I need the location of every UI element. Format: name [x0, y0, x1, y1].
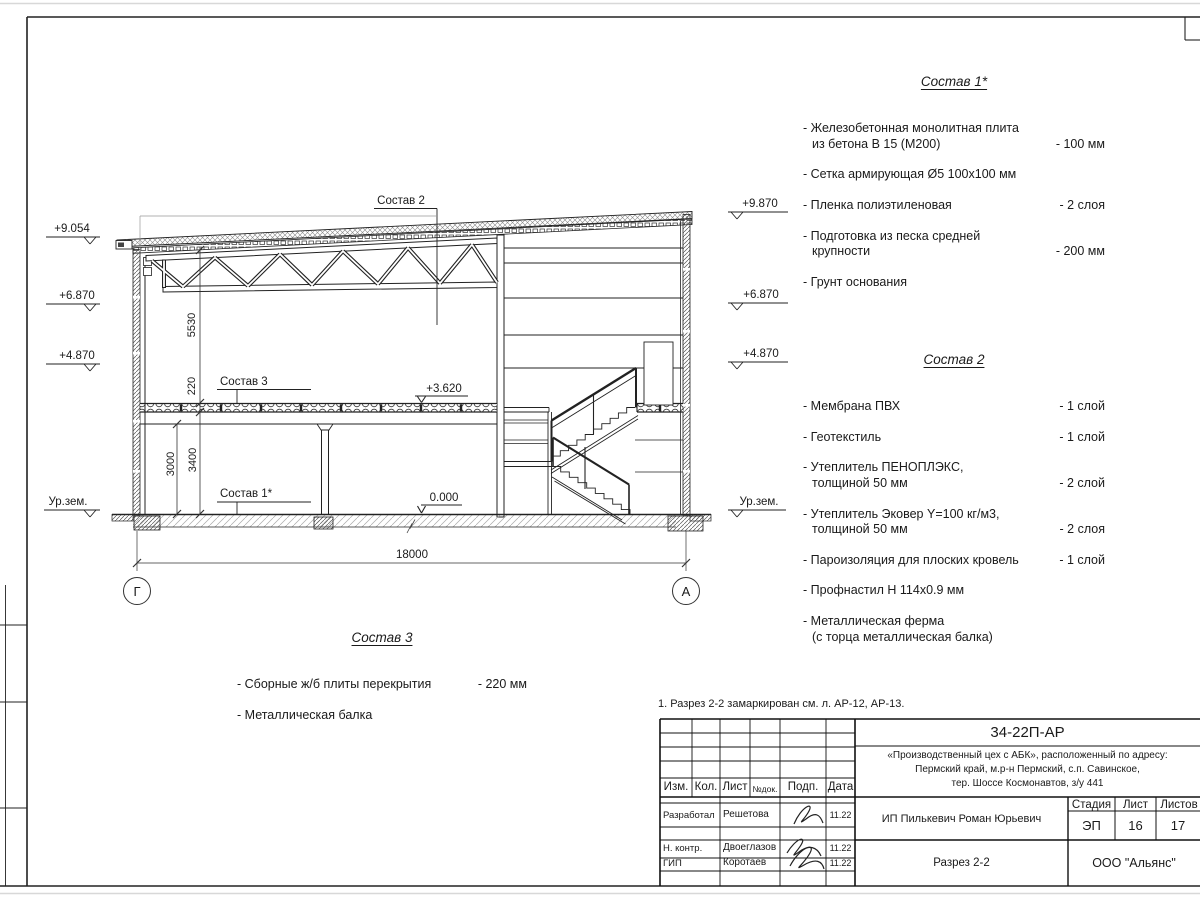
list-item: - Подготовка из песка средней крупности-…	[803, 229, 1105, 260]
axis-bubble-right: А	[673, 578, 700, 605]
dim-18000: 18000	[386, 549, 438, 561]
tb-name-gip: Коротаев	[723, 857, 779, 868]
tb-col-kol: Кол.	[692, 781, 720, 793]
project-name: «Производственный цех с АБК», расположен…	[858, 749, 1197, 792]
staircase	[504, 342, 673, 524]
elevation-left-2: +6.870	[52, 290, 102, 302]
list-item: - Железобетонная монолитная плита из бет…	[803, 121, 1105, 152]
tb-date-ncontrol: 11.22	[826, 843, 855, 853]
list-item: - Пленка полиэтиленовая- 2 слоя	[803, 198, 1105, 214]
list-item: - Металлическая ферма (с торца металличе…	[803, 614, 1105, 645]
composition-list-3: Состав 3 - Сборные ж/б плиты перекрытия-…	[237, 630, 527, 723]
dim-220: 220	[186, 368, 198, 404]
composition-2-title: Состав 2	[803, 352, 1105, 367]
elevation-right-3: +4.870	[736, 348, 786, 360]
ground	[112, 515, 711, 534]
tb-role-developer: Разработал	[663, 810, 720, 821]
list-item: - Сборные ж/б плиты перекрытия- 220 мм	[237, 677, 527, 693]
client-name: ИП Пилькевич Роман Юрьевич	[857, 799, 1066, 839]
doc-code: 34-22П-АР	[855, 721, 1200, 744]
tb-col-data: Дата	[826, 781, 855, 793]
composition-1-title: Состав 1*	[803, 74, 1105, 89]
sheet-note: 1. Разрез 2-2 замаркирован см. л. АР-12,…	[658, 698, 904, 710]
tb-stage-value: ЭП	[1068, 813, 1115, 838]
tb-name-ncontrol: Двоеглазов	[723, 842, 779, 853]
callout-slab-label: Состав 3	[220, 376, 268, 388]
dim-5530: 5530	[186, 305, 198, 345]
drawing-sheet: Состав 2 Состав 3 Состав 1* +3.620 0.000…	[0, 0, 1200, 900]
composition-list-2: Состав 2 - Мембрана ПВХ- 1 слой - Геотек…	[803, 352, 1105, 645]
column	[317, 424, 333, 515]
tb-sheet-value: 16	[1115, 813, 1156, 838]
list-item: - Утеплитель Эковер Y=100 кг/м3, толщино…	[803, 507, 1105, 538]
dim-3000: 3000	[165, 446, 177, 482]
floor-slab	[140, 404, 683, 425]
level-zero-label: 0.000	[422, 492, 466, 504]
tb-date-developer: 11.22	[826, 810, 855, 820]
list-item: - Пароизоляция для плоских кровель- 1 сл…	[803, 553, 1105, 569]
composition-3-title: Состав 3	[237, 630, 527, 645]
list-item: - Геотекстиль- 1 слой	[803, 430, 1105, 446]
tb-col-izm: Изм.	[660, 781, 692, 793]
tb-role-ncontrol: Н. контр.	[663, 843, 720, 854]
callout-roof-label: Состав 2	[366, 195, 436, 207]
axis-bubble-left: Г	[124, 578, 151, 605]
elevation-right-1: +9.870	[733, 198, 787, 210]
company-name: ООО "Альянс"	[1068, 840, 1200, 886]
tb-role-gip: ГИП	[663, 858, 720, 869]
elevation-left-ground: Ур.зем.	[40, 496, 96, 508]
elevation-right-2: +6.870	[736, 289, 786, 301]
tb-sheet-label: Лист	[1115, 799, 1156, 811]
list-item: - Утеплитель ПЕНОПЛЭКС, толщиной 50 мм- …	[803, 460, 1105, 491]
tb-sheets-value: 17	[1156, 813, 1200, 838]
elevation-left-1: +9.054	[44, 223, 100, 235]
dim-3400: 3400	[187, 442, 199, 478]
tb-sheets-label: Листов	[1156, 799, 1200, 811]
list-item: - Сетка армирующая Ø5 100х100 мм	[803, 167, 1105, 183]
callout-floor-label: Состав 1*	[220, 488, 272, 500]
list-item: - Грунт основания	[803, 275, 1105, 291]
tb-date-gip: 11.22	[826, 858, 855, 868]
list-item: - Мембрана ПВХ- 1 слой	[803, 399, 1105, 415]
elevation-left-3: +4.870	[52, 350, 102, 362]
tb-col-podp: Подп.	[780, 781, 826, 793]
elevation-right-ground: Ур.зем.	[731, 496, 787, 508]
composition-list-1: Состав 1* - Железобетонная монолитная пл…	[803, 74, 1105, 290]
sheet-title: Разрез 2-2	[855, 840, 1068, 886]
list-item: - Металлическая балка	[237, 708, 527, 724]
tb-stage-label: Стадия	[1068, 799, 1115, 811]
signatures	[787, 806, 824, 869]
list-item: - Профнастил Н 114х0.9 мм	[803, 583, 1105, 599]
tb-col-ndok: №док.	[750, 784, 780, 794]
tb-name-developer: Решетова	[723, 809, 779, 820]
tb-col-list: Лист	[720, 781, 750, 793]
level-slab-label: +3.620	[417, 383, 471, 395]
